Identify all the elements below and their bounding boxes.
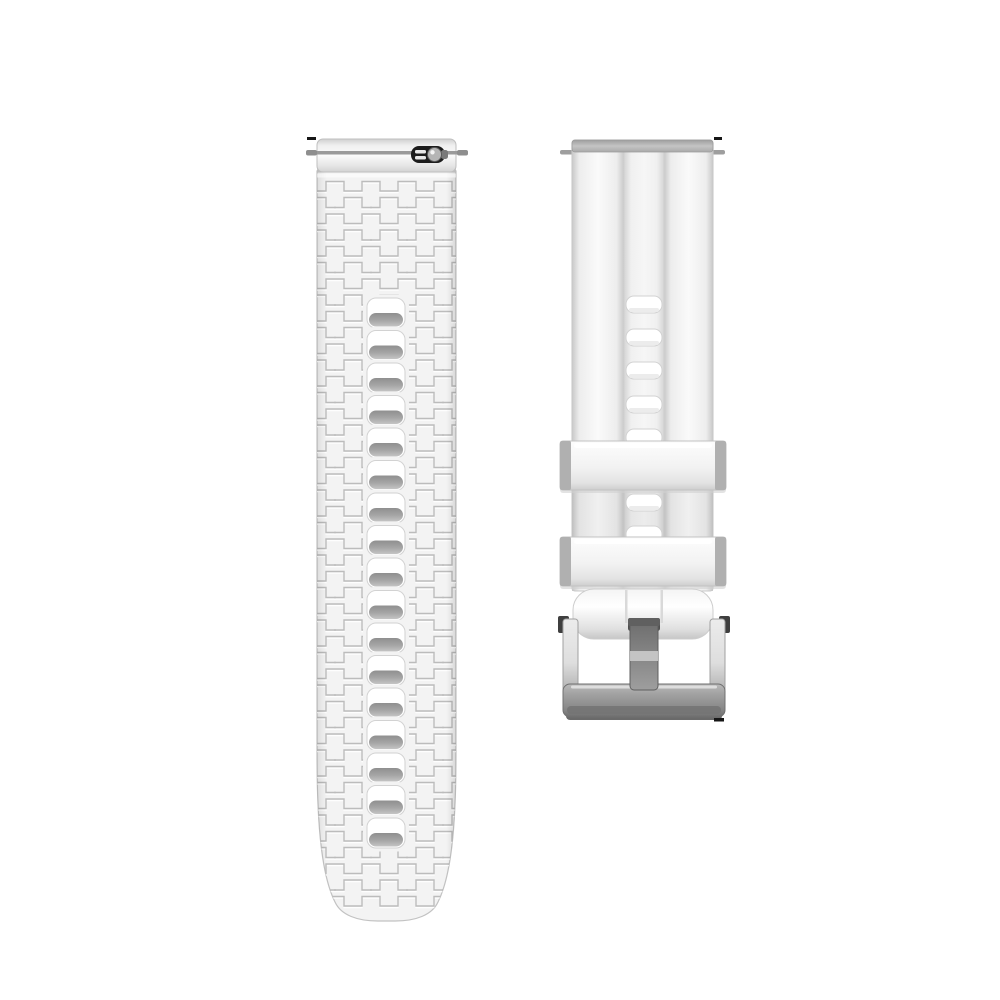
channel-hole-shade — [629, 506, 659, 510]
hole-ledge — [369, 476, 403, 490]
keeper-loop — [560, 441, 726, 490]
channel-hole-shade — [629, 408, 659, 412]
hole-ledge — [369, 768, 403, 782]
quick-release-toggle — [411, 146, 448, 163]
photo-artifact-mark — [307, 137, 316, 140]
hole-ledge — [369, 313, 403, 327]
tongue-hinge — [628, 618, 660, 626]
quick-release-knob — [428, 148, 442, 162]
tongue-highlight-band — [630, 651, 658, 661]
hole-ledge — [369, 573, 403, 587]
keeper-highlight — [574, 539, 712, 544]
keeper-cap-right — [715, 537, 726, 586]
quick-release-knob-highlight — [430, 150, 434, 154]
strap-tail-piece — [306, 139, 468, 921]
hole-ledge — [369, 606, 403, 620]
watch-strap-illustration — [0, 0, 1000, 1000]
channel-hole-shade — [629, 374, 659, 378]
quick-release-tail — [441, 150, 448, 159]
channel-hole-shade — [629, 308, 659, 312]
photo-artifact-mark — [714, 718, 724, 722]
hole-ledge — [369, 508, 403, 522]
strap-adjustment-holes — [363, 295, 409, 852]
hole-ledge — [369, 671, 403, 685]
keeper-loop — [560, 537, 726, 586]
wrap-channel-edge-right — [661, 590, 664, 623]
hole-ledge — [369, 378, 403, 392]
keeper-cap-right — [715, 441, 726, 490]
hole-ledge — [369, 541, 403, 555]
wrap-channel-edge-left — [625, 590, 628, 623]
hole-ledge — [369, 346, 403, 360]
photo-artifact-mark — [714, 137, 722, 140]
channel-hole-shade — [629, 341, 659, 345]
spring-bar-tip-left — [306, 150, 317, 156]
strap-tail-crease-highlight — [317, 174, 456, 178]
product-photo — [0, 0, 1000, 1000]
buckle-bar-lower-shade — [567, 706, 721, 714]
strap-buckle-lug-band — [572, 140, 713, 152]
buckle-arm-right — [710, 619, 725, 692]
strap-buckle-piece — [558, 140, 730, 720]
hole-ledge — [369, 411, 403, 425]
hole-ledge — [369, 638, 403, 652]
hole-ledge — [369, 801, 403, 815]
hole-ledge — [369, 833, 403, 847]
buckle-arm-left — [563, 619, 578, 692]
keeper-cap-left — [560, 537, 571, 586]
quick-release-slit-top — [415, 150, 426, 154]
keeper-cap-left — [560, 441, 571, 490]
quick-release-slit-bottom — [415, 156, 426, 160]
spring-bar-tip-right — [457, 150, 468, 156]
buckle-tongue — [628, 618, 660, 690]
hole-ledge — [369, 736, 403, 750]
keeper-highlight — [574, 443, 712, 448]
hole-ledge — [369, 443, 403, 457]
hole-ledge — [369, 703, 403, 717]
